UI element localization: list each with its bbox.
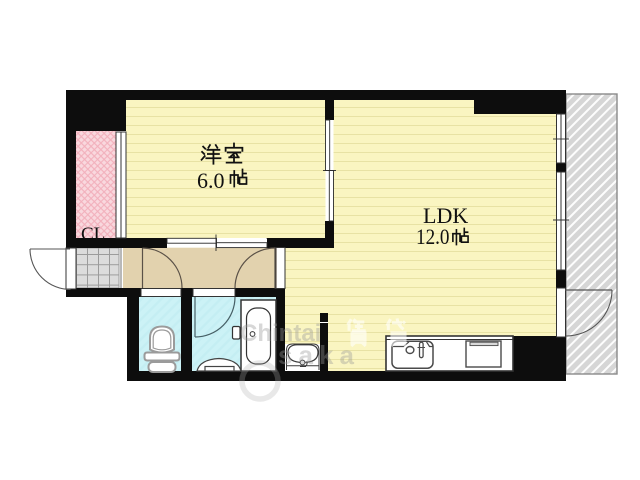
svg-text:12.0: 12.0 [416, 224, 450, 249]
svg-text:6.0: 6.0 [197, 168, 225, 193]
svg-text:CL: CL [81, 224, 105, 245]
